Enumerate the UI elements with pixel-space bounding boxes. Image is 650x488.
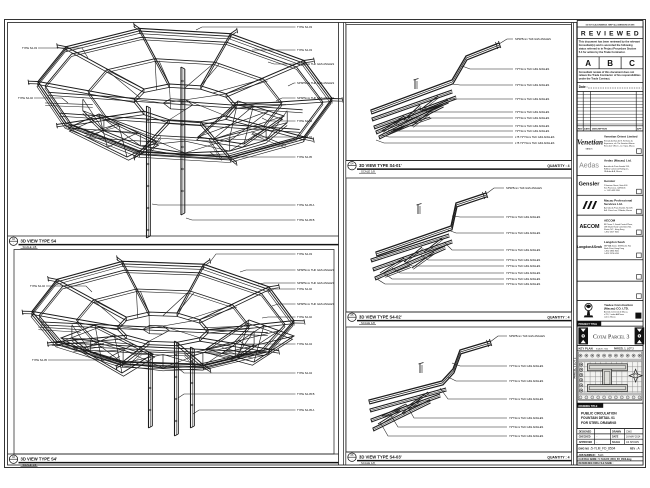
- svg-text:73*73mm THK G&S ANGLES: 73*73mm THK G&S ANGLES: [506, 258, 541, 262]
- svg-text:SPSP5mm THK G&S ANGLES: SPSP5mm THK G&S ANGLES: [297, 281, 334, 285]
- svg-text:73*73mm THK G&S ANGLES: 73*73mm THK G&S ANGLES: [509, 397, 544, 401]
- svg-text:Langdon Seah: Langdon Seah: [604, 240, 625, 244]
- svg-text:AECOM: AECOM: [579, 224, 600, 230]
- svg-text:SPSP5mm THK G&S ANGLES: SPSP5mm THK G&S ANGLES: [297, 302, 334, 306]
- svg-text:AS SHOWN: AS SHOWN: [626, 441, 639, 444]
- svg-text:REV :: REV :: [630, 448, 637, 451]
- svg-text:Consultant review of this docu: Consultant review of this document does …: [579, 70, 635, 74]
- svg-text:73*73mm THK G&S ANGLES: 73*73mm THK G&S ANGLES: [509, 379, 544, 383]
- svg-text:73*73mm THK G&S ANGLES: 73*73mm THK G&S ANGLES: [506, 231, 541, 235]
- svg-text:QUANTITY : 4: QUANTITY : 4: [547, 316, 569, 320]
- svg-text:Edf. China Law, 21 Andar, Maca: Edf. China Law, 21 Andar, Macau: [604, 209, 632, 212]
- svg-text:73*73mm THK G&S ANGLES: 73*73mm THK G&S ANGLES: [509, 425, 544, 429]
- svg-text:L75 73*73mm THK G&S ANGLES: L75 73*73mm THK G&S ANGLES: [515, 135, 555, 139]
- svg-text:DESIGNED: DESIGNED: [579, 430, 592, 433]
- svg-text:SCALE: SCALE: [612, 441, 621, 444]
- svg-text:SCALE 1/8: SCALE 1/8: [361, 321, 375, 325]
- svg-text:SPSP5mm THK G&S ANGLES: SPSP5mm THK G&S ANGLES: [297, 96, 334, 100]
- svg-text:B: B: [607, 59, 613, 68]
- svg-text:73*73mm THK G&S ANGLES: 73*73mm THK G&S ANGLES: [509, 434, 544, 438]
- svg-text:QUANTITY : 4: QUANTITY : 4: [547, 164, 569, 168]
- svg-text:APPROVED: APPROVED: [579, 441, 593, 444]
- svg-text:73*73mm THK G&S ANGLES: 73*73mm THK G&S ANGLES: [509, 416, 544, 420]
- svg-text:73*73mm THK G&S ANGLES: 73*73mm THK G&S ANGLES: [515, 124, 550, 128]
- svg-text:SCALE 1/8: SCALE 1/8: [361, 461, 375, 465]
- svg-text:t +852 2317 7000: t +852 2317 7000: [604, 231, 619, 234]
- svg-text:Edificio Comercial Rodrigues,: Edificio Comercial Rodrigues,: [604, 168, 629, 171]
- svg-text:QUANTITY : 4: QUANTITY : 4: [547, 456, 569, 460]
- svg-text:SCALE 1/8: SCALE 1/8: [361, 169, 375, 173]
- svg-text:3D VIEW TYPE S4: 3D VIEW TYPE S4: [21, 239, 57, 244]
- svg-text:under the Trade Contract.: under the Trade Contract.: [579, 77, 611, 81]
- svg-text:Estrada da Baia de N. Senhora: Estrada da Baia de N. Senhora da: [604, 140, 634, 143]
- svg-text:REFERENCE DWG FILE NAME :: REFERENCE DWG FILE NAME :: [579, 462, 614, 465]
- svg-text:A: A: [585, 59, 591, 68]
- svg-text:SPSP5mm THK G&S ANGLES: SPSP5mm THK G&S ANGLES: [297, 81, 334, 85]
- svg-text:status referred to in Projec: status referred to in Project Procedure …: [579, 46, 637, 50]
- svg-text:APP: APP: [637, 128, 642, 131]
- svg-text:Venetian Orient Limited: Venetian Orient Limited: [604, 135, 638, 139]
- svg-text:73*73mm THK G&S ANGLES: 73*73mm THK G&S ANGLES: [515, 110, 550, 114]
- svg-text:SPSP5mm THK G&S ANGLES: SPSP5mm THK G&S ANGLES: [506, 186, 542, 190]
- svg-text:Esperanca, s/n The Venetian Ma: Esperanca, s/n The Venetian Macao: [604, 142, 634, 145]
- svg-text:relieve the Trade Contractor o: relieve the Trade Contractor of his resp…: [579, 73, 641, 77]
- svg-text:SPSP5mm THK G&S ANGLES: SPSP5mm THK G&S ANGLES: [297, 268, 334, 272]
- svg-text:DESCRIPTION: DESCRIPTION: [592, 129, 607, 131]
- svg-text:TYPE S4-05 A: TYPE S4-05 A: [297, 203, 315, 207]
- svg-text:PUBLIC CIRCULATION: PUBLIC CIRCULATION: [581, 412, 617, 416]
- svg-text:CWO: CWO: [626, 430, 632, 433]
- svg-text:Venetian: Venetian: [577, 139, 603, 147]
- svg-text:TYPE S4-02: TYPE S4-02: [297, 287, 312, 291]
- svg-text:-: -: [13, 243, 14, 246]
- svg-text:3D VIEW TYPE S4-02': 3D VIEW TYPE S4-02': [359, 315, 402, 320]
- svg-text:TYPE S4-03: TYPE S4-03: [297, 252, 312, 256]
- svg-text:Avenida da Praia Grande, No 40: Avenida da Praia Grande, No 409,: [604, 206, 633, 209]
- svg-text:TYPE S4-03: TYPE S4-03: [297, 119, 312, 123]
- svg-text:TYPE S4-03: TYPE S4-03: [297, 25, 312, 29]
- svg-text:TYPE S4-02: TYPE S4-02: [18, 96, 33, 100]
- svg-text:TYPE S4-04: TYPE S4-04: [297, 371, 312, 375]
- svg-text:3D VIEW TYPE S4-03': 3D VIEW TYPE S4-03': [359, 455, 402, 460]
- svg-text:suite 2, Macau: suite 2, Macau: [604, 315, 616, 318]
- svg-text:73*73mm THK G&S ANGLES: 73*73mm THK G&S ANGLES: [506, 271, 541, 275]
- svg-text:DATE: DATE: [584, 128, 590, 131]
- svg-text:73*73mm THK G&S ANGLES: 73*73mm THK G&S ANGLES: [515, 97, 550, 101]
- svg-text:CHECKED: CHECKED: [579, 436, 591, 439]
- svg-text:SANDS: SANDS: [586, 148, 594, 151]
- svg-text:PARCEL 1, LOT 2: PARCEL 1, LOT 2: [614, 347, 634, 350]
- svg-text:C: C: [629, 59, 635, 68]
- svg-text:This document has been reviewe: This document has been reviewed by the r…: [579, 40, 640, 44]
- svg-text:Shatin, N.T., Hong Kong: Shatin, N.T., Hong Kong: [604, 228, 624, 231]
- svg-text:PROJECT TITLE: PROJECT TITLE: [579, 323, 598, 326]
- svg-text:FOUNTAIN DETAIL 01: FOUNTAIN DETAIL 01: [581, 416, 615, 420]
- svg-text:SCALE 1/8: SCALE 1/8: [23, 463, 37, 467]
- svg-text:PARCEL 1 LOT 2: PARCEL 1 LOT 2: [573, 357, 577, 378]
- svg-text:FOR STEEL DRAWING: FOR STEEL DRAWING: [581, 421, 617, 425]
- svg-text:-: -: [13, 461, 14, 464]
- svg-text:R E V I E W E D: R E V I E W E D: [581, 31, 640, 38]
- svg-text:Consultant(s) and is accorded: Consultant(s) and is accorded the follow…: [579, 43, 633, 47]
- svg-text:73*73mm THK G&S ANGLES: 73*73mm THK G&S ANGLES: [506, 248, 541, 252]
- svg-text:TYPE S4-04: TYPE S4-04: [297, 135, 312, 139]
- svg-text:SPSP5mm THK G&S ANGLES: SPSP5mm THK G&S ANGLES: [515, 37, 551, 41]
- svg-text:5-YLM_FD_8504: 5-YLM_FD_8504: [591, 447, 616, 451]
- svg-text:73*73mm THK G&S ANGLES: 73*73mm THK G&S ANGLES: [515, 83, 550, 87]
- svg-text:DRAWN: DRAWN: [612, 430, 621, 433]
- svg-text:Executive Offices - L2, Taipa,: Executive Offices - L2, Taipa, Macau: [604, 145, 635, 148]
- svg-text:TYPE S4-05 B: TYPE S4-05 B: [297, 218, 315, 222]
- svg-text:TYPE S4-05: TYPE S4-05: [32, 358, 47, 362]
- svg-text:L75 73*73mm THK G&S ANGLES: L75 73*73mm THK G&S ANGLES: [515, 141, 555, 145]
- svg-text:REV: REV: [578, 129, 583, 131]
- svg-text:3D VIEW TYPE S4': 3D VIEW TYPE S4': [21, 457, 58, 462]
- svg-text:Aedas: Aedas: [579, 163, 599, 170]
- svg-text:73*73mm THK G&S ANGLES: 73*73mm THK G&S ANGLES: [515, 67, 550, 71]
- svg-text:SCALE 1/8: SCALE 1/8: [23, 245, 37, 249]
- svg-text:73*73mm THK G&S ANGLES: 73*73mm THK G&S ANGLES: [506, 277, 541, 281]
- svg-text:Avenida da Praia Grande 599,: Avenida da Praia Grande 599,: [604, 165, 630, 168]
- svg-text:TYPE S4-05: TYPE S4-05: [297, 155, 312, 159]
- svg-text:Date :: Date :: [579, 85, 588, 89]
- svg-text:San Francisco, CA 94105: San Francisco, CA 94105: [604, 187, 625, 190]
- svg-text:DRAWING TITLE: DRAWING TITLE: [579, 405, 598, 408]
- svg-text:Gensler: Gensler: [604, 179, 616, 183]
- svg-text:16-MAY-2014: 16-MAY-2014: [626, 436, 641, 439]
- svg-text:73*73mm THK G&S ANGLES: 73*73mm THK G&S ANGLES: [509, 364, 544, 368]
- svg-text:SPSP5mm THK G&S ANGLES: SPSP5mm THK G&S ANGLES: [297, 62, 334, 66]
- svg-text:-: -: [352, 319, 353, 322]
- svg-text:TYPE S4-02: TYPE S4-02: [297, 315, 312, 319]
- svg-text:73*73mm THK G&S ANGLES: 73*73mm THK G&S ANGLES: [506, 264, 541, 268]
- svg-text:TYPE S4-03: TYPE S4-03: [22, 46, 37, 50]
- svg-text:-: -: [352, 459, 353, 462]
- svg-text:73*73mm THK G&S ANGLES: 73*73mm THK G&S ANGLES: [506, 282, 541, 286]
- svg-text:TYPE S4-05 A: TYPE S4-05 A: [297, 408, 315, 412]
- svg-text:18 Andar A-B, Macau: 18 Andar A-B, Macau: [604, 170, 622, 173]
- svg-text:Aedas (Macau) Ltd.: Aedas (Macau) Ltd.: [604, 159, 632, 163]
- svg-text:TYPE S4-05 B: TYPE S4-05 B: [297, 392, 315, 396]
- svg-text:KEY PLAN: KEY PLAN: [579, 346, 593, 350]
- svg-text:3D VIEW TYPE S4-01': 3D VIEW TYPE S4-01': [359, 163, 402, 168]
- svg-text:TYPE S4-02: TYPE S4-02: [30, 284, 45, 288]
- svg-text:73*73mm THK G&S ANGLES: 73*73mm THK G&S ANGLES: [515, 116, 550, 120]
- svg-text:t + 1.415.433.3700: t + 1.415.433.3700: [604, 189, 620, 192]
- svg-text:TYPE S4-04: TYPE S4-04: [297, 342, 312, 346]
- svg-text:SPSP5mm THK G&S ANGLES: SPSP5mm THK G&S ANGLES: [509, 334, 545, 338]
- svg-text:5123: 5123: [598, 454, 604, 457]
- svg-text:f +852 2576 0416: f +852 2576 0416: [604, 253, 619, 255]
- svg-text:Gensler: Gensler: [579, 182, 601, 188]
- svg-text:2 Harrison Street, Suite 400: 2 Harrison Street, Suite 400: [604, 184, 627, 187]
- svg-text:(Macau) CO. LTD.: (Macau) CO. LTD.: [604, 306, 629, 310]
- svg-text:5.4 for action by the Trade Co: 5.4 for action by the Trade Contractor.: [579, 50, 626, 54]
- svg-text:73*73mm THK G&S ANGLES: 73*73mm THK G&S ANGLES: [515, 129, 550, 133]
- svg-text:Services Ltd.: Services Ltd.: [604, 202, 623, 206]
- svg-text:JOB NUMBER :: JOB NUMBER :: [579, 454, 597, 457]
- svg-text:38/F AIA Tower, 183 Electric R: 38/F AIA Tower, 183 Electric Rd,: [604, 245, 631, 248]
- svg-text:DATE: DATE: [612, 436, 619, 439]
- svg-text:73*73mm THK G&S ANGLES: 73*73mm THK G&S ANGLES: [506, 215, 541, 219]
- svg-text:SCALE 1:7500: SCALE 1:7500: [596, 347, 608, 350]
- svg-text:8/F Tower 2, Grand Central Pla: 8/F Tower 2, Grand Central Plaza,: [604, 223, 633, 226]
- svg-text:-: -: [352, 167, 353, 170]
- svg-text:TYPE S4-03: TYPE S4-03: [297, 48, 312, 52]
- svg-text:Langdon&Seah: Langdon&Seah: [577, 245, 602, 249]
- svg-text:DWG NO :: DWG NO :: [579, 448, 591, 451]
- svg-text:AECOM: AECOM: [604, 219, 616, 223]
